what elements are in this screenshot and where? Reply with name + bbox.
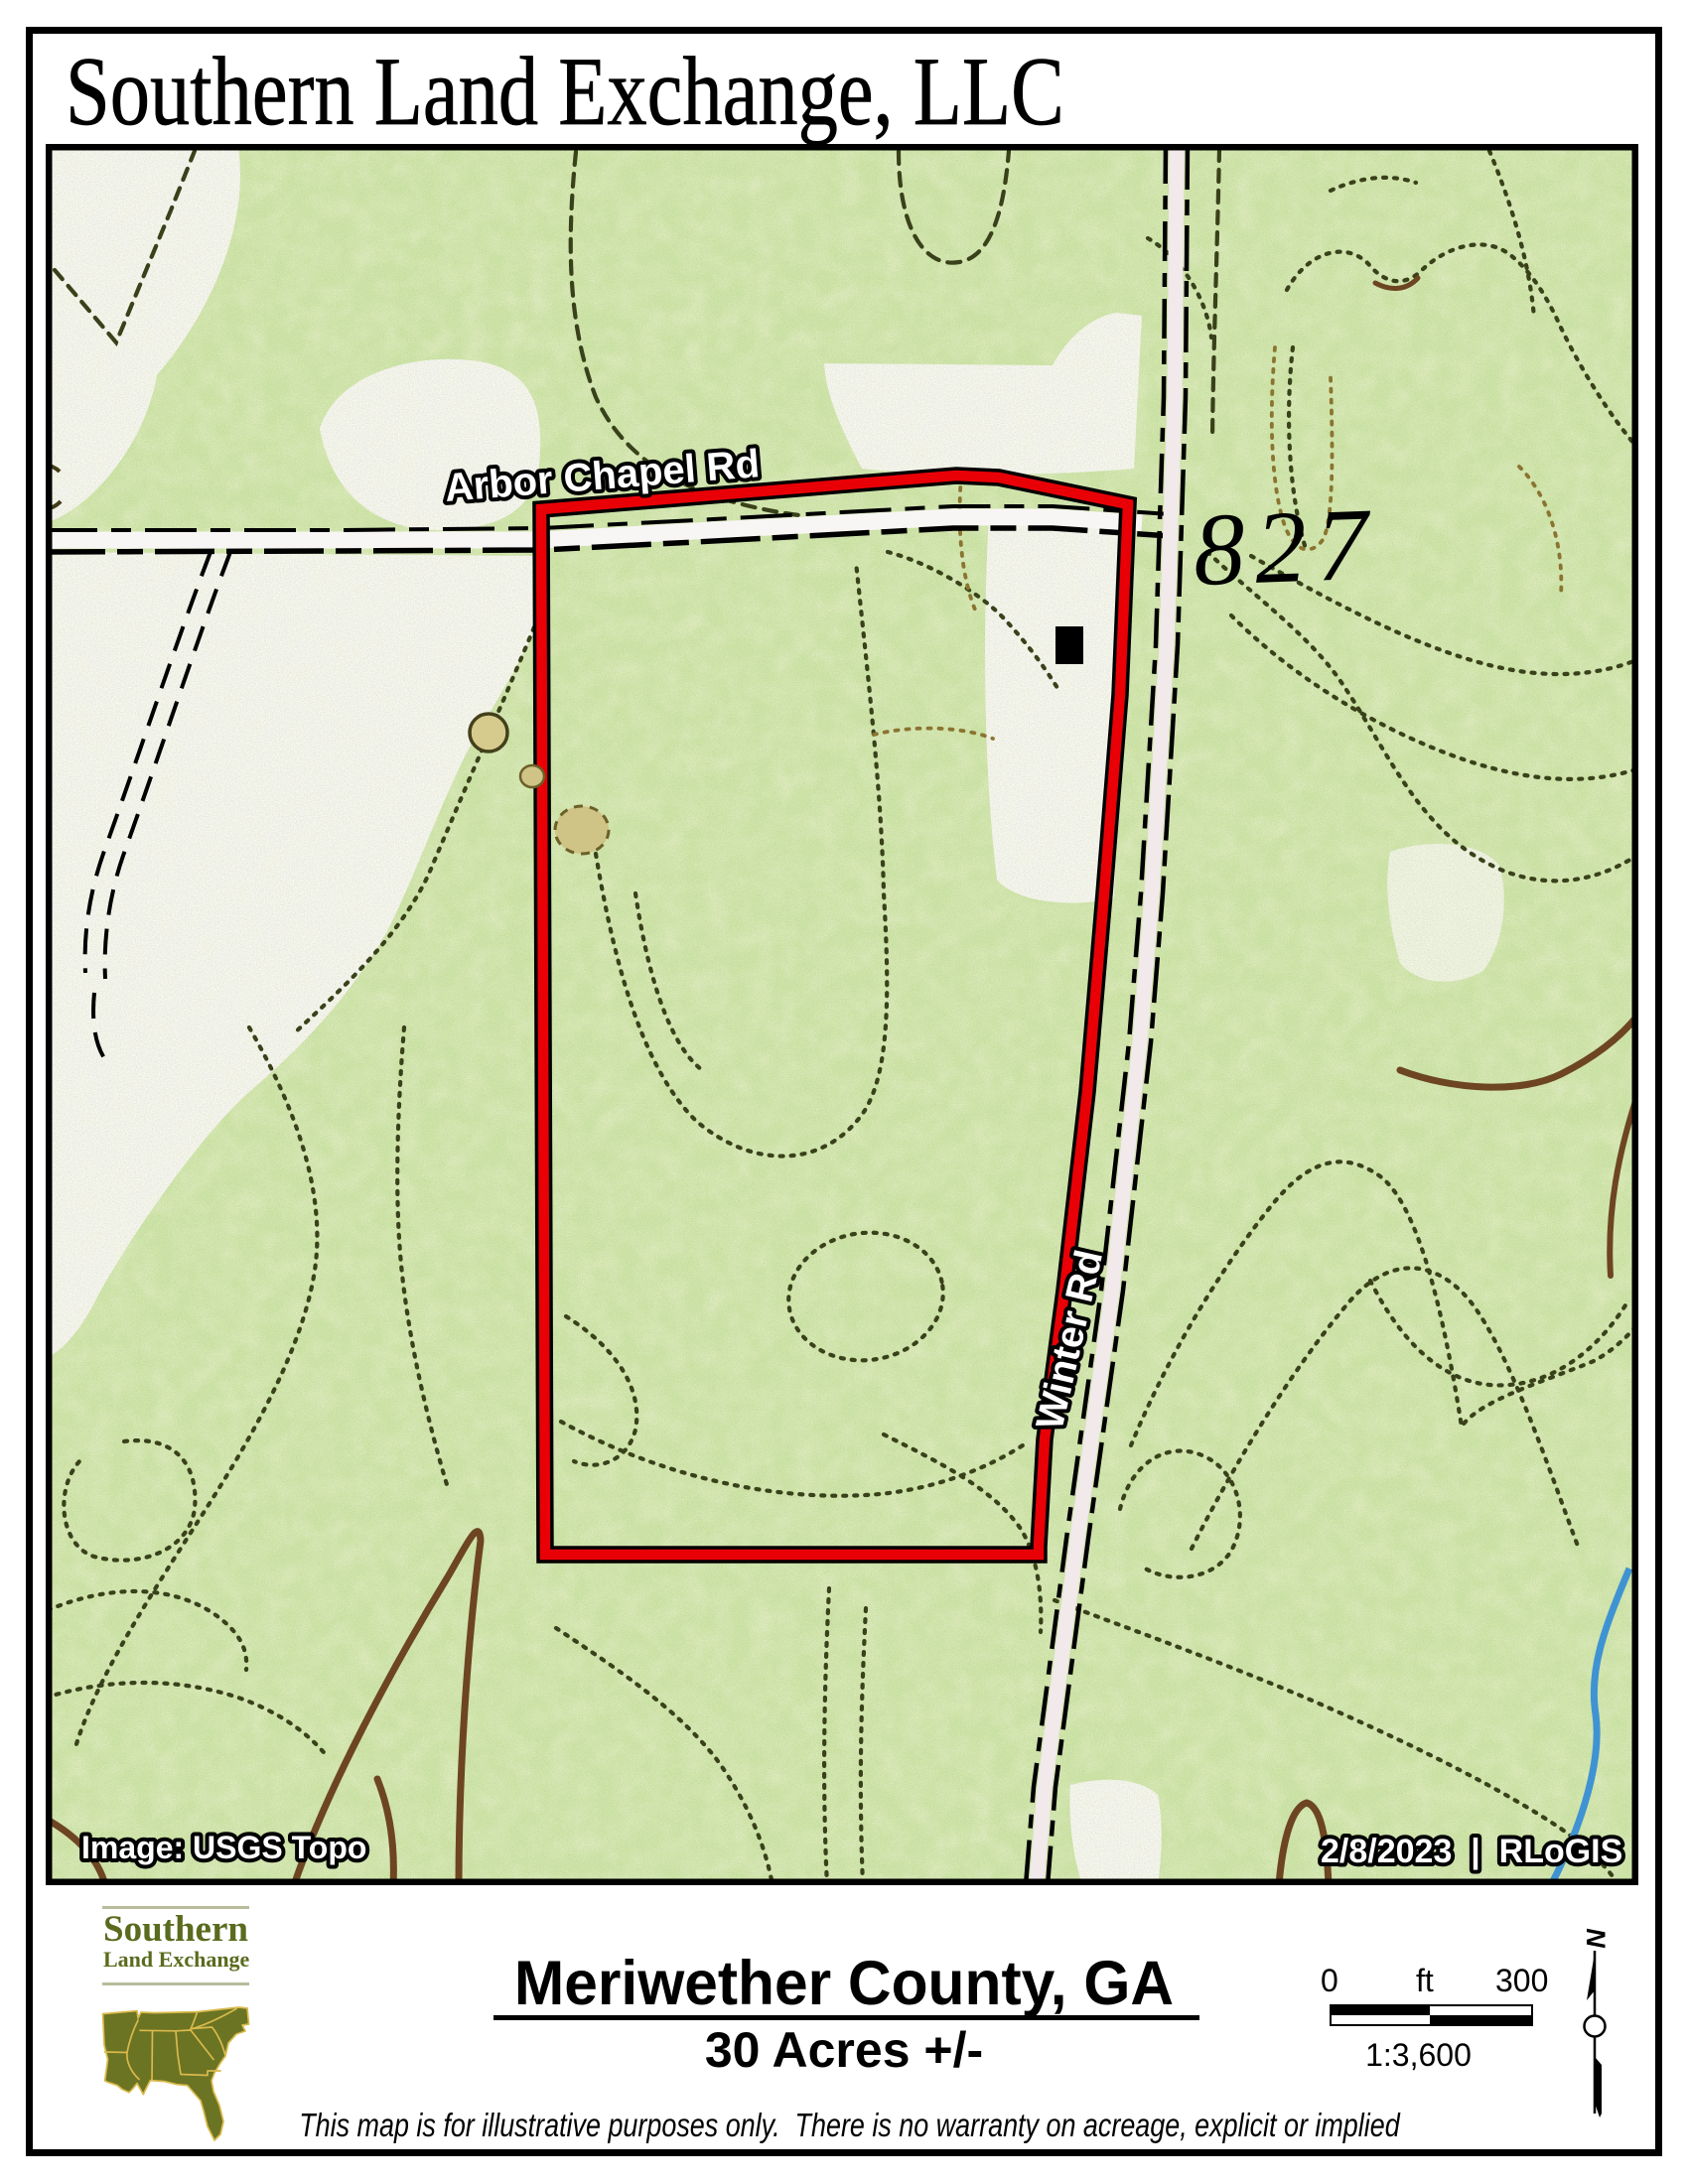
- svg-text:827: 827: [1192, 487, 1380, 608]
- svg-text:Image: USGS Topo: Image: USGS Topo: [81, 1830, 366, 1865]
- svg-text:2/8/2023 | RLoGIS: 2/8/2023 | RLoGIS: [1321, 1833, 1622, 1870]
- svg-text:N: N: [1581, 1928, 1611, 1948]
